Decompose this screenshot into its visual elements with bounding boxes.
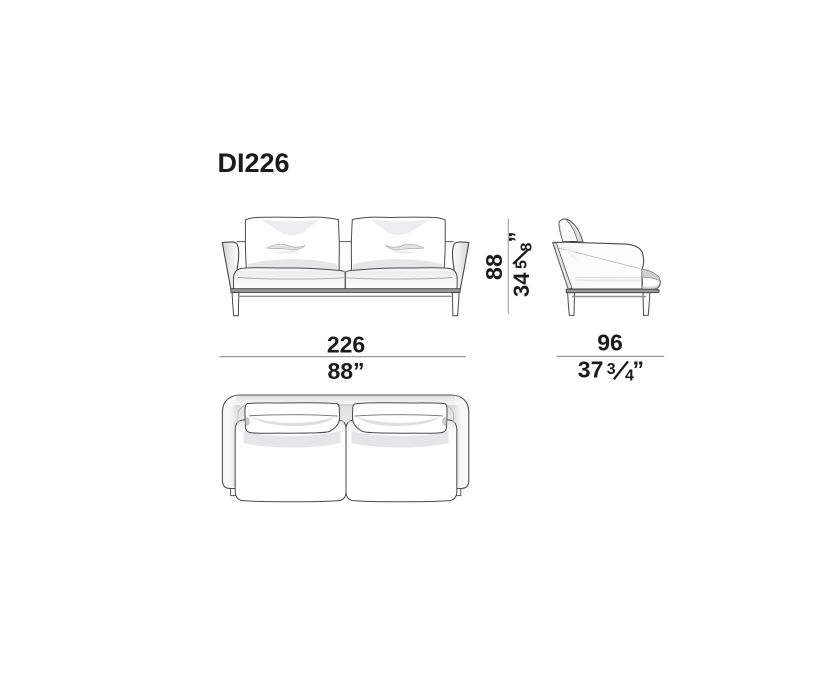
svg-text:3: 3 — [607, 361, 616, 378]
svg-text:88”: 88” — [327, 358, 364, 384]
svg-text:96: 96 — [597, 329, 623, 355]
svg-text:8: 8 — [519, 243, 536, 252]
svg-text:226: 226 — [327, 331, 365, 357]
svg-text:88: 88 — [481, 254, 507, 280]
svg-text:”: ” — [505, 232, 530, 243]
svg-text:34: 34 — [509, 272, 534, 297]
svg-text:37: 37 — [578, 357, 604, 383]
svg-text:”: ” — [633, 357, 645, 383]
svg-text:DI226: DI226 — [218, 148, 290, 178]
